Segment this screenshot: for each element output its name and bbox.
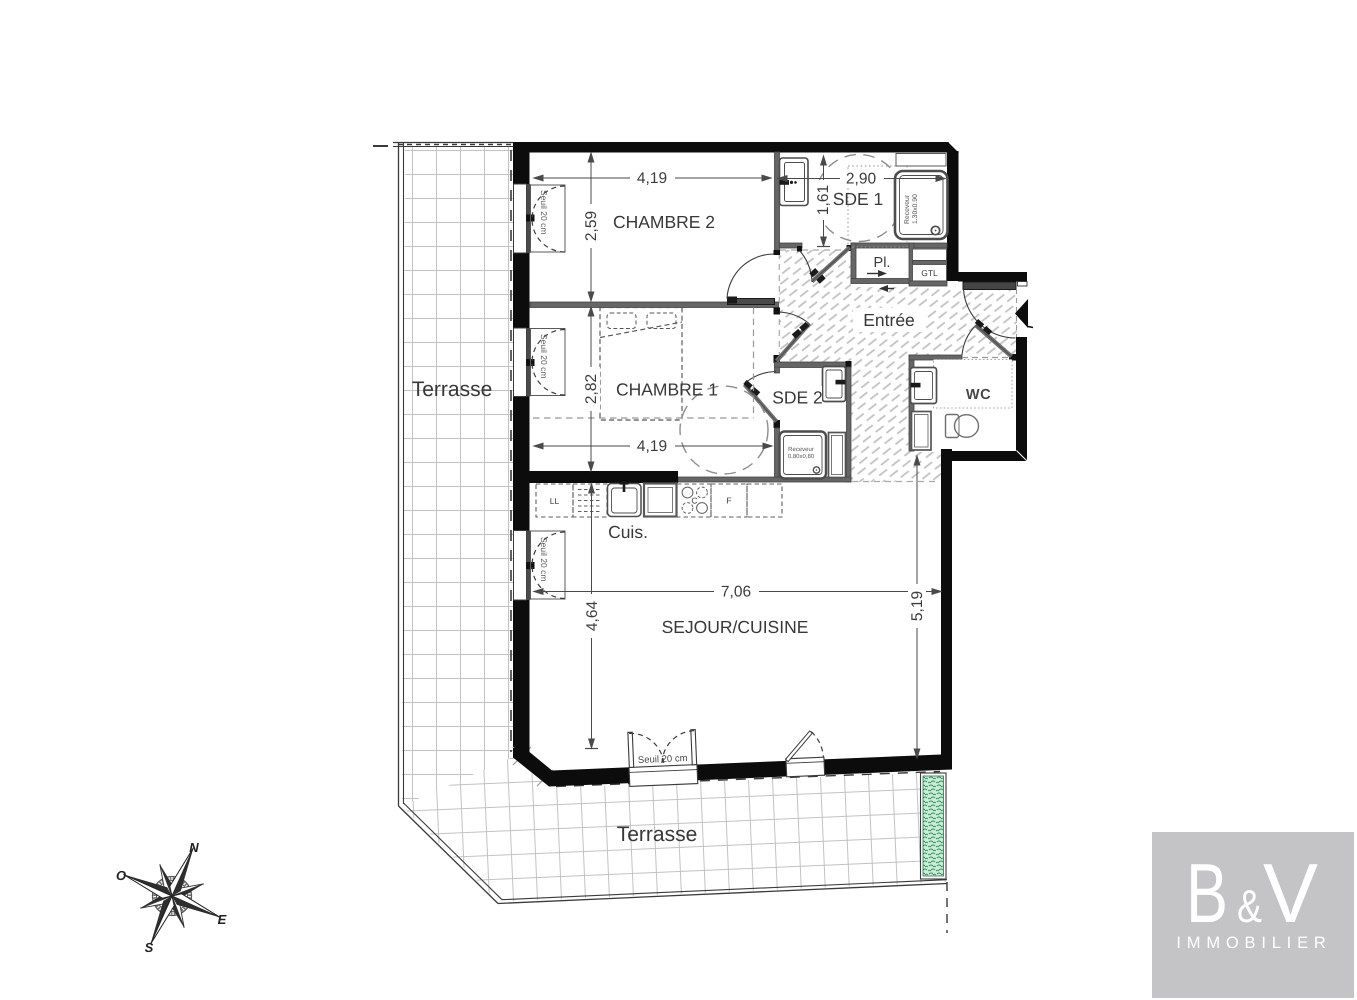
svg-text:Receveur: Receveur [904,194,911,224]
svg-text:LL: LL [550,496,560,506]
svg-text:Terrasse: Terrasse [617,823,698,846]
svg-text:2,59: 2,59 [583,211,600,241]
svg-text:Seuil 20 cm: Seuil 20 cm [539,334,549,378]
svg-text:0,80x0,80: 0,80x0,80 [788,453,815,460]
svg-text:4,19: 4,19 [637,438,667,455]
svg-text:Seuil 20 cm: Seuil 20 cm [539,537,549,581]
svg-text:5,19: 5,19 [909,591,926,621]
svg-text:2,82: 2,82 [583,374,600,404]
svg-text:Entrée: Entrée [863,310,915,330]
svg-text:7,06: 7,06 [721,584,751,601]
svg-text:WC: WC [966,387,991,403]
svg-text:C: C [691,496,697,506]
svg-text:Cuis.: Cuis. [608,522,648,542]
svg-text:IMMOBILIER: IMMOBILIER [1176,934,1331,952]
svg-text:O: O [116,868,126,883]
svg-text:CHAMBRE 1: CHAMBRE 1 [616,380,718,400]
svg-text:4,19: 4,19 [637,170,667,187]
svg-text:1.30x0.90: 1.30x0.90 [912,194,919,224]
svg-text:S: S [145,940,154,955]
svg-text:1,61: 1,61 [815,185,832,215]
svg-text:Terrasse: Terrasse [412,378,493,401]
svg-text:Seuil 20 cm: Seuil 20 cm [638,753,688,766]
svg-text:&: & [1237,880,1262,932]
svg-text:SDE 2: SDE 2 [772,388,823,408]
svg-text:2,90: 2,90 [846,171,877,188]
svg-text:F: F [726,496,731,506]
svg-text:Seuil 20 cm: Seuil 20 cm [539,190,549,234]
svg-text:E: E [218,912,227,927]
svg-text:B: B [1186,846,1228,940]
svg-text:V: V [1263,846,1318,940]
svg-text:Pl.: Pl. [874,255,891,271]
svg-text:SDE 1: SDE 1 [833,189,884,209]
svg-text:SEJOUR/CUISINE: SEJOUR/CUISINE [662,617,809,637]
svg-text:GTL: GTL [921,268,938,278]
svg-text:Receveur: Receveur [788,446,814,453]
svg-text:N: N [189,840,199,855]
svg-text:CHAMBRE 2: CHAMBRE 2 [613,212,715,232]
svg-text:4,64: 4,64 [584,601,601,632]
